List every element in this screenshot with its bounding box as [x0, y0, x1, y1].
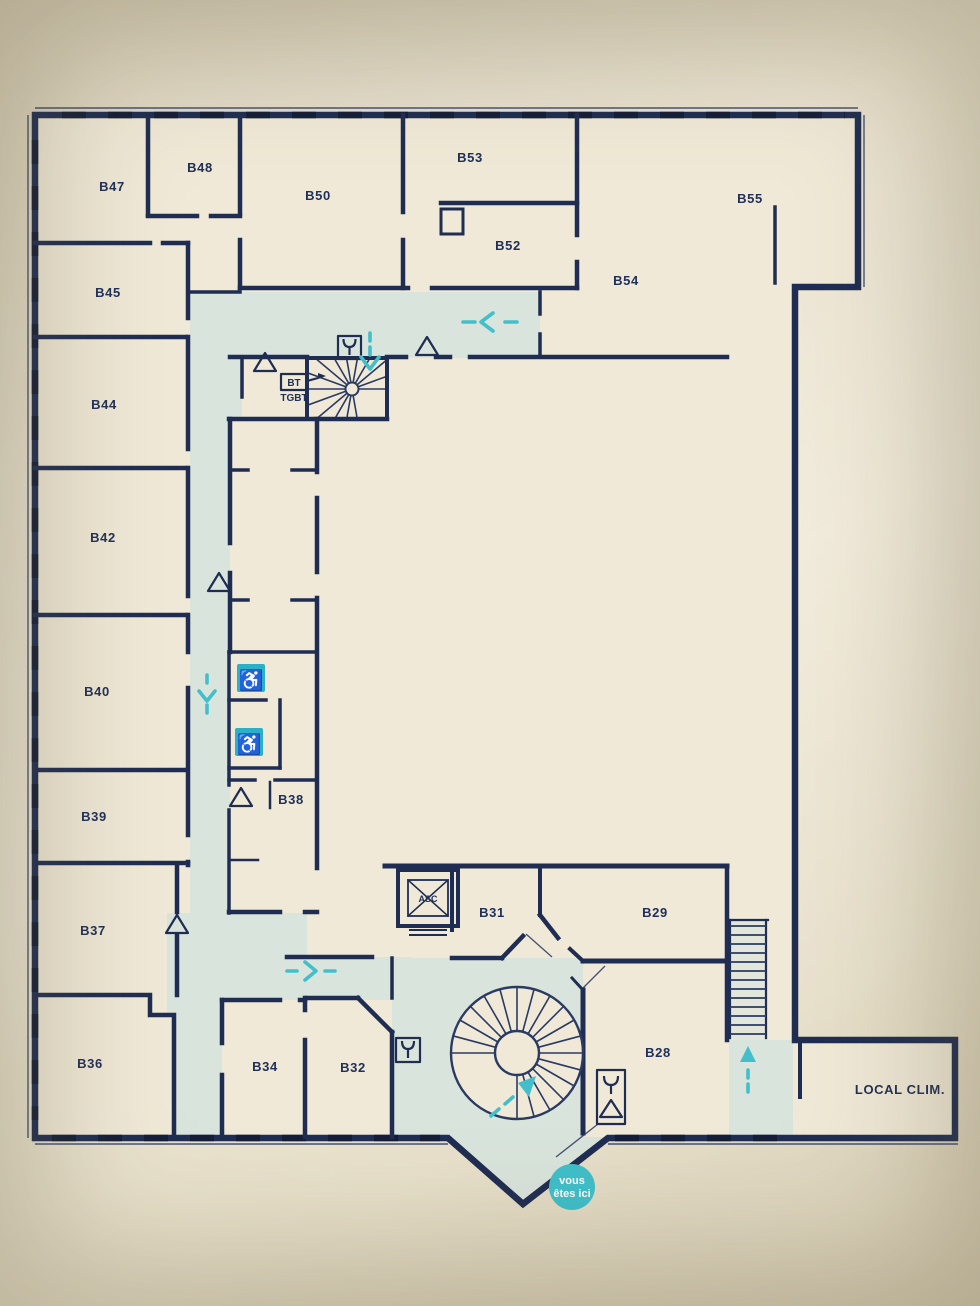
room-label-b47: B47 — [99, 179, 125, 194]
you-are-here-line1: vous — [559, 1175, 585, 1187]
room-label-b44: B44 — [91, 397, 117, 412]
room-label-b31: B31 — [479, 905, 505, 920]
room-label-b42: B42 — [90, 530, 116, 545]
you-are-here-marker: vous êtes ici — [549, 1164, 595, 1210]
fan-staircase — [306, 344, 398, 435]
you-are-here-line2: êtes ici — [553, 1188, 590, 1200]
svg-text:♿: ♿ — [237, 732, 262, 756]
room-label-b55: B55 — [737, 191, 763, 206]
room-label-b37: B37 — [80, 923, 106, 938]
room-label-b53: B53 — [457, 150, 483, 165]
electrical-room-label-tgbt: TGBT — [280, 393, 307, 404]
room-label-b50: B50 — [305, 188, 331, 203]
room-label-b38: B38 — [278, 792, 304, 807]
room-label-b36: B36 — [77, 1056, 103, 1071]
room-label-local-clim: LOCAL CLIM. — [855, 1082, 945, 1097]
room-label-b45: B45 — [95, 285, 121, 300]
room-label-b52: B52 — [495, 238, 521, 253]
spiral-staircase — [451, 987, 583, 1119]
room-label-b28: B28 — [645, 1045, 671, 1060]
room-label-b39: B39 — [81, 809, 107, 824]
room-label-b54: B54 — [613, 273, 639, 288]
room-label-b34: B34 — [252, 1059, 278, 1074]
room-label-b32: B32 — [340, 1060, 366, 1075]
wheelchair-accessible-icon: ♿ — [235, 728, 263, 756]
wheelchair-accessible-icon: ♿ — [237, 664, 265, 692]
room-label-b40: B40 — [84, 684, 110, 699]
room-label-b48: B48 — [187, 160, 213, 175]
electrical-room-label-bt: BT — [287, 378, 300, 389]
floor-plan: ASC ♿ ♿ — [0, 0, 980, 1306]
room-label-b29: B29 — [642, 905, 668, 920]
elevator-label: ASC — [418, 894, 438, 904]
svg-text:♿: ♿ — [239, 668, 264, 692]
floor-plan-photo: ASC ♿ ♿ — [0, 0, 980, 1306]
